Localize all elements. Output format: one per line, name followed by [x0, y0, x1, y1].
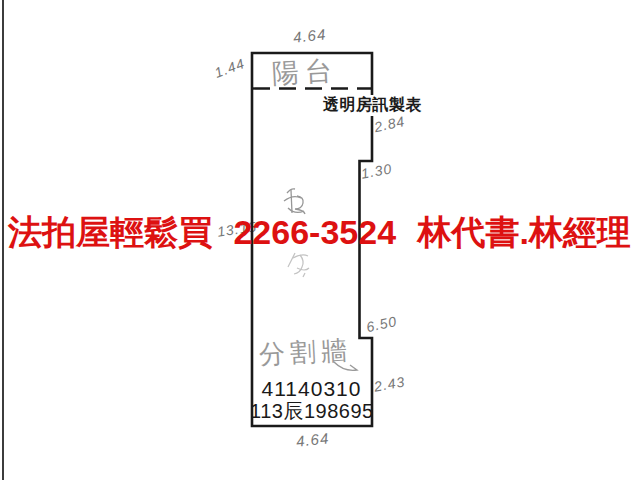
partition-wall-label: 分割牆	[258, 333, 353, 373]
dim-top-width: 4.64	[292, 25, 327, 45]
scanned-floorplan-page: 4.64 1.44 2.84 1.30 6.50 2.43 13.15 4.64…	[0, 0, 640, 480]
handwritten-scribble-upper	[284, 189, 305, 214]
ad-banner-text: 法拍屋輕鬆買 2266-3524 林代書.林經理	[8, 212, 631, 252]
balcony-label: 陽台	[271, 52, 339, 91]
case-number: 113辰198695	[250, 398, 373, 425]
handwritten-scribble-lower	[288, 253, 309, 277]
dim-bottom-width: 4.64	[295, 429, 330, 449]
maker-label: 透明房訊製表	[322, 95, 423, 116]
